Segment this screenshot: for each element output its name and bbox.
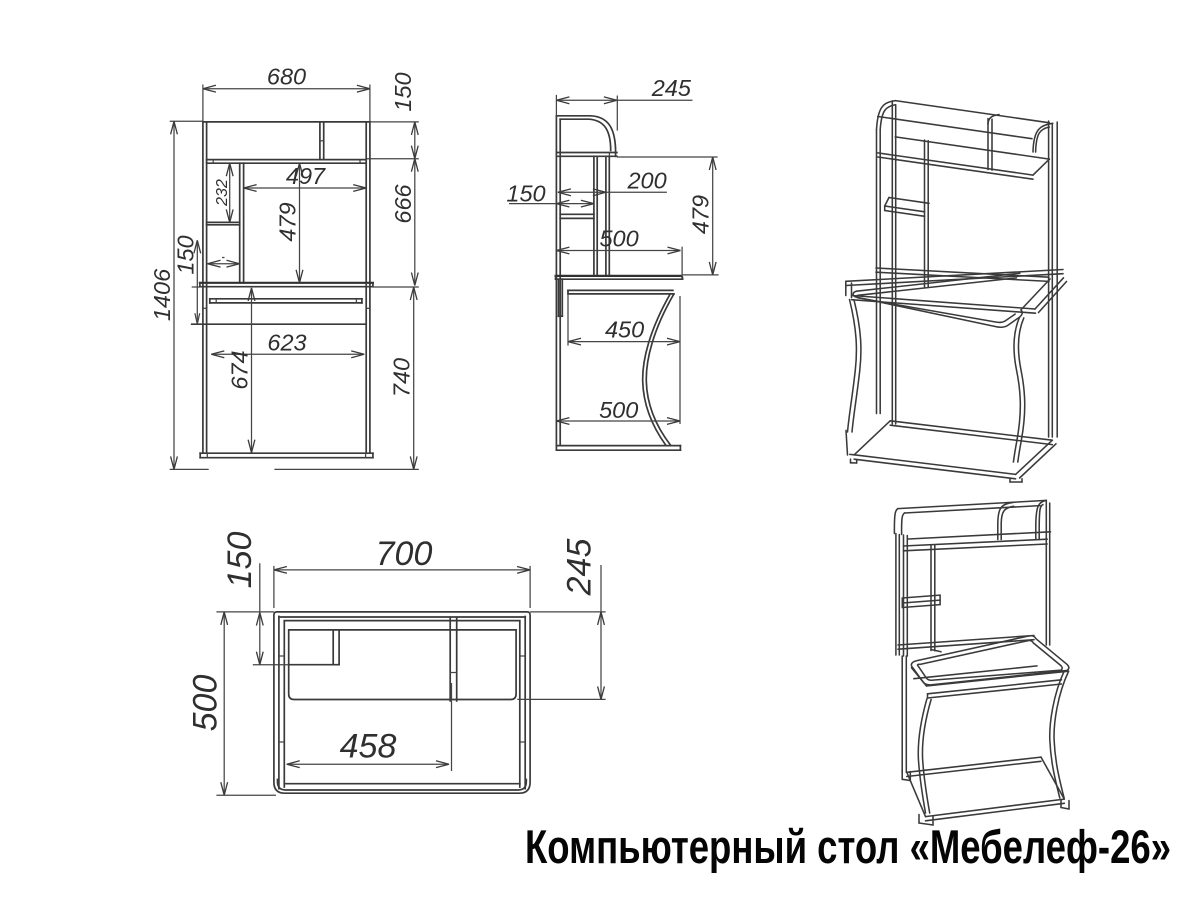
svg-text:500: 500 [599,225,638,251]
svg-text:740: 740 [389,358,415,397]
svg-text:479: 479 [688,195,714,234]
svg-text:150: 150 [390,72,416,111]
svg-text:500: 500 [187,675,225,732]
svg-text:674: 674 [227,350,253,389]
svg-text:150: 150 [506,181,545,207]
svg-text:458: 458 [340,728,397,766]
svg-text:1406: 1406 [149,268,175,321]
svg-text:680: 680 [267,64,306,90]
svg-text:245: 245 [651,75,692,101]
svg-text:623: 623 [267,329,306,355]
svg-text:150: 150 [221,532,259,589]
svg-text:Компьютерный стол «Мебелеф-26»: Компьютерный стол «Мебелеф-26» [525,820,1171,873]
svg-text:232: 232 [214,179,231,207]
svg-text:666: 666 [390,183,416,223]
svg-text:700: 700 [376,535,433,573]
svg-text:200: 200 [626,168,666,194]
svg-text:497: 497 [286,163,326,189]
svg-text:479: 479 [275,202,301,241]
svg-text:150: 150 [172,235,198,274]
svg-text:450: 450 [605,316,644,342]
svg-text:245: 245 [561,539,599,597]
svg-text:500: 500 [599,397,638,423]
